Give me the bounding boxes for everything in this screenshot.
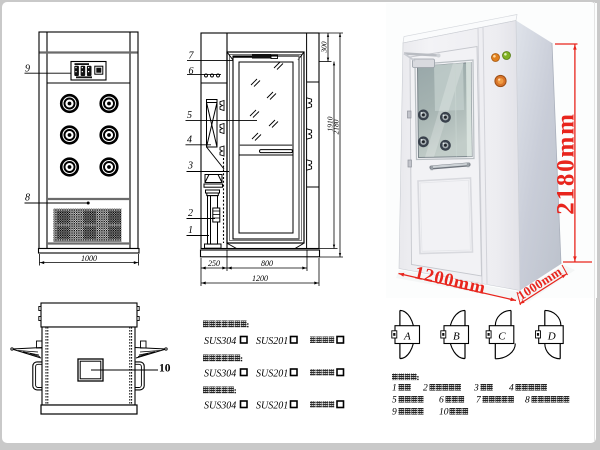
svg-text:8: 8 xyxy=(525,396,530,406)
svg-text:250: 250 xyxy=(208,259,220,268)
svg-text:10: 10 xyxy=(159,363,171,375)
svg-text:2: 2 xyxy=(188,208,193,219)
svg-text:1200: 1200 xyxy=(252,274,268,283)
svg-text:300: 300 xyxy=(319,41,328,54)
svg-text:8: 8 xyxy=(25,193,30,204)
svg-text:1: 1 xyxy=(188,225,193,236)
svg-text:5: 5 xyxy=(392,396,397,406)
svg-text:7: 7 xyxy=(189,51,195,62)
svg-text:SUS201: SUS201 xyxy=(256,369,288,380)
svg-text:2180: 2180 xyxy=(331,119,340,134)
svg-text:SUS201: SUS201 xyxy=(256,401,288,412)
svg-text:SUS304: SUS304 xyxy=(204,401,236,412)
svg-text:SUS304: SUS304 xyxy=(204,336,236,347)
svg-text:4: 4 xyxy=(509,384,514,394)
svg-text:1000: 1000 xyxy=(81,254,97,263)
svg-text:2: 2 xyxy=(423,384,428,394)
svg-text:SUS201: SUS201 xyxy=(256,336,288,347)
svg-text:D: D xyxy=(547,331,556,343)
svg-text:10: 10 xyxy=(439,408,449,418)
svg-text:A: A xyxy=(403,331,411,343)
svg-text:B: B xyxy=(453,331,460,343)
svg-text:4: 4 xyxy=(187,135,192,146)
svg-text:3: 3 xyxy=(473,384,479,394)
svg-text:6: 6 xyxy=(439,396,444,406)
svg-text:2180mm: 2180mm xyxy=(553,112,580,214)
svg-text:6: 6 xyxy=(189,66,194,77)
svg-text:9: 9 xyxy=(392,408,397,418)
svg-text:800: 800 xyxy=(261,259,273,268)
svg-text:SUS304: SUS304 xyxy=(204,369,236,380)
svg-text:3: 3 xyxy=(187,161,193,172)
svg-text:1: 1 xyxy=(392,384,397,394)
svg-text:C: C xyxy=(498,331,506,343)
svg-text:5: 5 xyxy=(187,110,192,121)
